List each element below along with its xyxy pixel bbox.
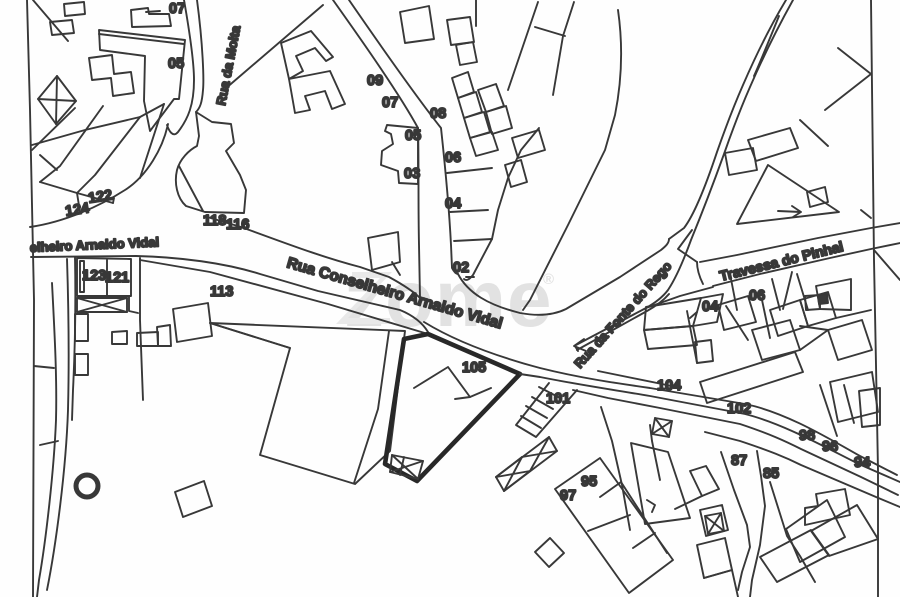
svg-text:05: 05 bbox=[168, 56, 184, 72]
svg-text:07: 07 bbox=[382, 95, 398, 111]
svg-text:118: 118 bbox=[203, 213, 226, 229]
svg-text:®: ® bbox=[543, 271, 554, 288]
svg-text:98: 98 bbox=[799, 428, 815, 444]
svg-text:87: 87 bbox=[731, 453, 747, 469]
svg-text:Rua da Moita: Rua da Moita bbox=[213, 24, 243, 107]
svg-text:96: 96 bbox=[822, 439, 838, 455]
svg-text:122: 122 bbox=[87, 187, 113, 207]
svg-text:02: 02 bbox=[453, 260, 469, 276]
svg-text:06: 06 bbox=[445, 150, 461, 166]
svg-text:elheiro Arnaldo Vidal: elheiro Arnaldo Vidal bbox=[29, 234, 159, 255]
svg-text:123: 123 bbox=[82, 268, 106, 284]
svg-text:124: 124 bbox=[64, 200, 90, 220]
svg-text:07: 07 bbox=[169, 1, 185, 17]
svg-text:04: 04 bbox=[445, 196, 461, 212]
svg-text:08: 08 bbox=[430, 106, 446, 122]
svg-text:09: 09 bbox=[367, 73, 383, 89]
svg-text:102: 102 bbox=[727, 401, 751, 417]
svg-text:94: 94 bbox=[854, 455, 870, 471]
svg-text:113: 113 bbox=[210, 284, 233, 300]
svg-text:04: 04 bbox=[702, 299, 718, 315]
svg-text:03: 03 bbox=[404, 166, 420, 182]
svg-text:95: 95 bbox=[581, 474, 597, 490]
svg-text:97: 97 bbox=[560, 488, 576, 504]
svg-text:85: 85 bbox=[763, 466, 779, 482]
svg-text:121: 121 bbox=[105, 270, 129, 286]
svg-text:105: 105 bbox=[462, 360, 486, 376]
svg-text:05: 05 bbox=[405, 128, 421, 144]
svg-text:116: 116 bbox=[226, 217, 249, 233]
